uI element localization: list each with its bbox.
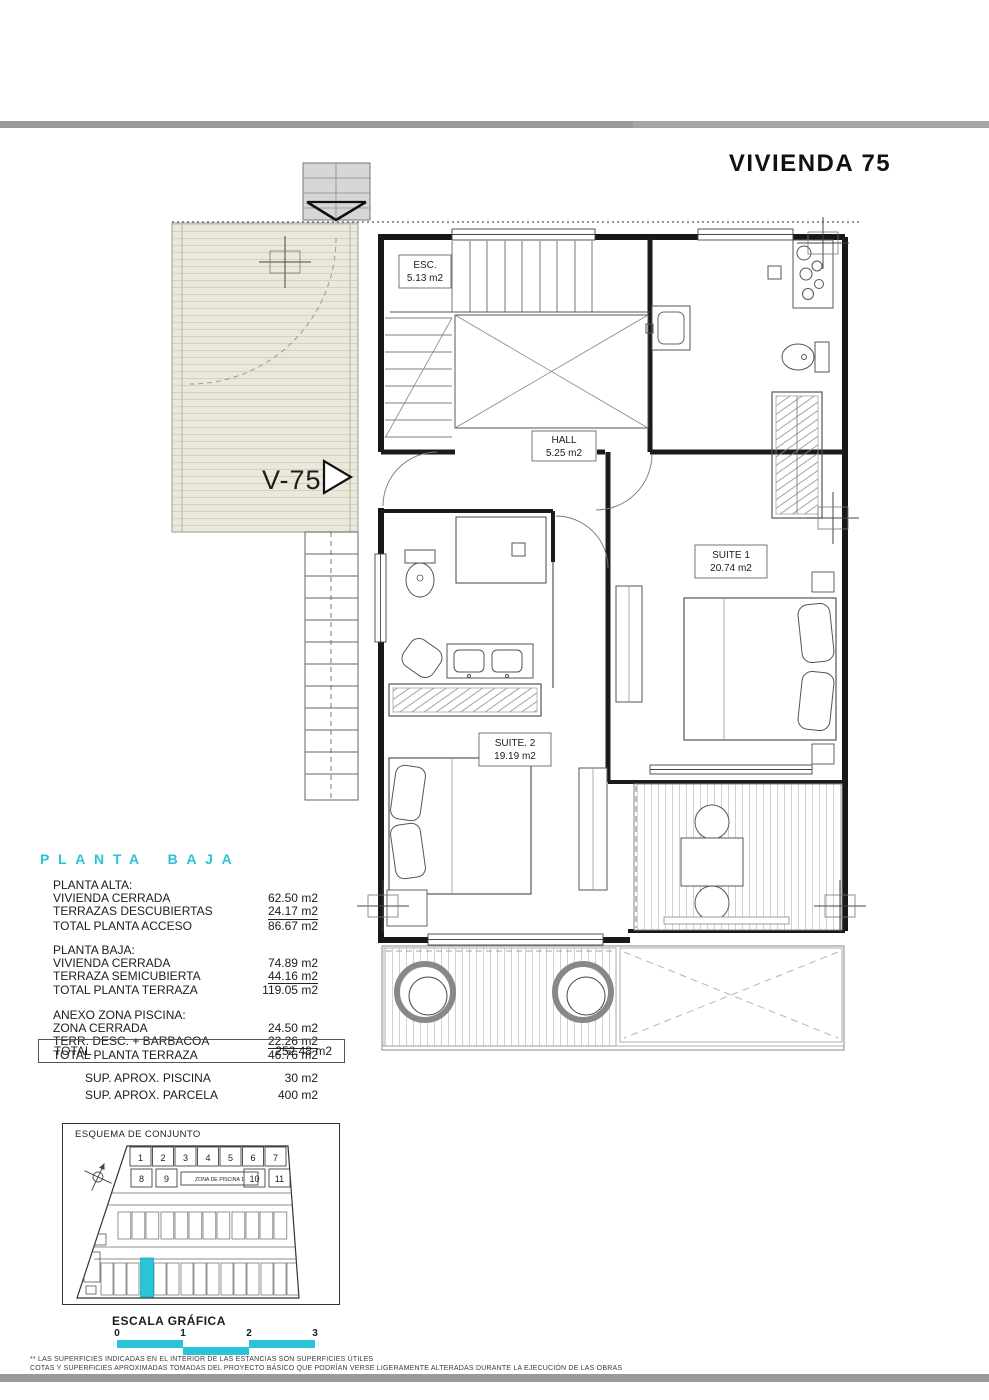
scale-segment (117, 1340, 183, 1348)
lounge-chair-1 (397, 964, 453, 1020)
scale-segment (183, 1347, 249, 1355)
svg-text:HALL: HALL (551, 435, 576, 446)
svg-text:SUITE 1: SUITE 1 (712, 550, 750, 561)
bathroom-top-right (646, 240, 833, 372)
footer-line-1: ** LAS SUPERFICIES INDICADAS EN EL INTER… (30, 1355, 960, 1364)
suite2-furniture (387, 758, 607, 926)
svg-text:SUITE. 2: SUITE. 2 (495, 738, 536, 749)
svg-text:ESC.: ESC. (413, 260, 436, 271)
graphic-scale: ESCALA GRÁFICA 0 1 2 3 (110, 1314, 340, 1360)
scale-tick: 1 (178, 1328, 188, 1339)
entry-structure (303, 163, 370, 220)
scale-segment (249, 1340, 315, 1348)
scale-tick: 2 (244, 1328, 254, 1339)
terrace-bottom (382, 946, 844, 1050)
table-row: TOTAL PLANTA TERRAZA119.05 m2 (53, 984, 318, 997)
footer-disclaimer: ** LAS SUPERFICIES INDICADAS EN EL INTER… (30, 1355, 960, 1373)
table-row: TERRAZA SEMICUBIERTA44.16 m2 (53, 970, 318, 984)
total-row: TOTAL 252.48 m2 (38, 1039, 345, 1063)
table-row: SUP. APROX. PISCINA30 m2 (85, 1070, 318, 1087)
footer-line-2: COTAS Y SUPERFICIES APROXIMADAS TOMADAS … (30, 1364, 960, 1373)
unit-label-text: V-75 (262, 465, 322, 495)
scale-tick: 0 (112, 1328, 122, 1339)
svg-text:5.25 m2: 5.25 m2 (546, 448, 583, 459)
svg-text:5.13 m2: 5.13 m2 (407, 273, 444, 284)
room-label-hall: HALL 5.25 m2 (532, 431, 596, 461)
scale-tick: 3 (310, 1328, 320, 1339)
room-label-suite1: SUITE 1 20.74 m2 (695, 545, 767, 578)
table-row: TOTAL PLANTA ACCESO86.67 m2 (53, 920, 318, 933)
terrace-right (634, 784, 842, 930)
site-plan-title: ESQUEMA DE CONJUNTO (75, 1129, 201, 1140)
room-label-esc: ESC. 5.13 m2 (399, 255, 451, 288)
side-staircase (305, 532, 358, 800)
room-label-suite2: SUITE. 2 19.19 m2 (479, 733, 551, 766)
areas-table: PLANTA ALTA: VIVIENDA CERRADA62.50 m2 TE… (53, 879, 318, 1062)
table-row: TERRAZAS DESCUBIERTAS24.17 m2 (53, 905, 318, 919)
plan-sheet: VIVIENDA 75 (0, 0, 989, 1400)
bottom-divider-bar (0, 1374, 989, 1382)
section-title: PLANTA BAJA (40, 851, 240, 867)
total-label: TOTAL (54, 1044, 92, 1058)
svg-text:19.19 m2: 19.19 m2 (494, 751, 536, 762)
wardrobe-suite1 (772, 392, 822, 518)
site-plan-frame (62, 1123, 340, 1305)
extra-areas: SUP. APROX. PISCINA30 m2 SUP. APROX. PAR… (85, 1070, 318, 1103)
group-header: ANEXO ZONA PISCINA: (53, 1009, 318, 1022)
lounge-chair-2 (555, 964, 611, 1020)
svg-text:20.74 m2: 20.74 m2 (710, 563, 752, 574)
scale-title: ESCALA GRÁFICA (112, 1314, 226, 1328)
bathroom-suite2 (389, 517, 546, 716)
table-row: SUP. APROX. PARCELA400 m2 (85, 1087, 318, 1104)
suite1-furniture (616, 572, 836, 764)
total-value: 252.48 m2 (275, 1044, 332, 1058)
